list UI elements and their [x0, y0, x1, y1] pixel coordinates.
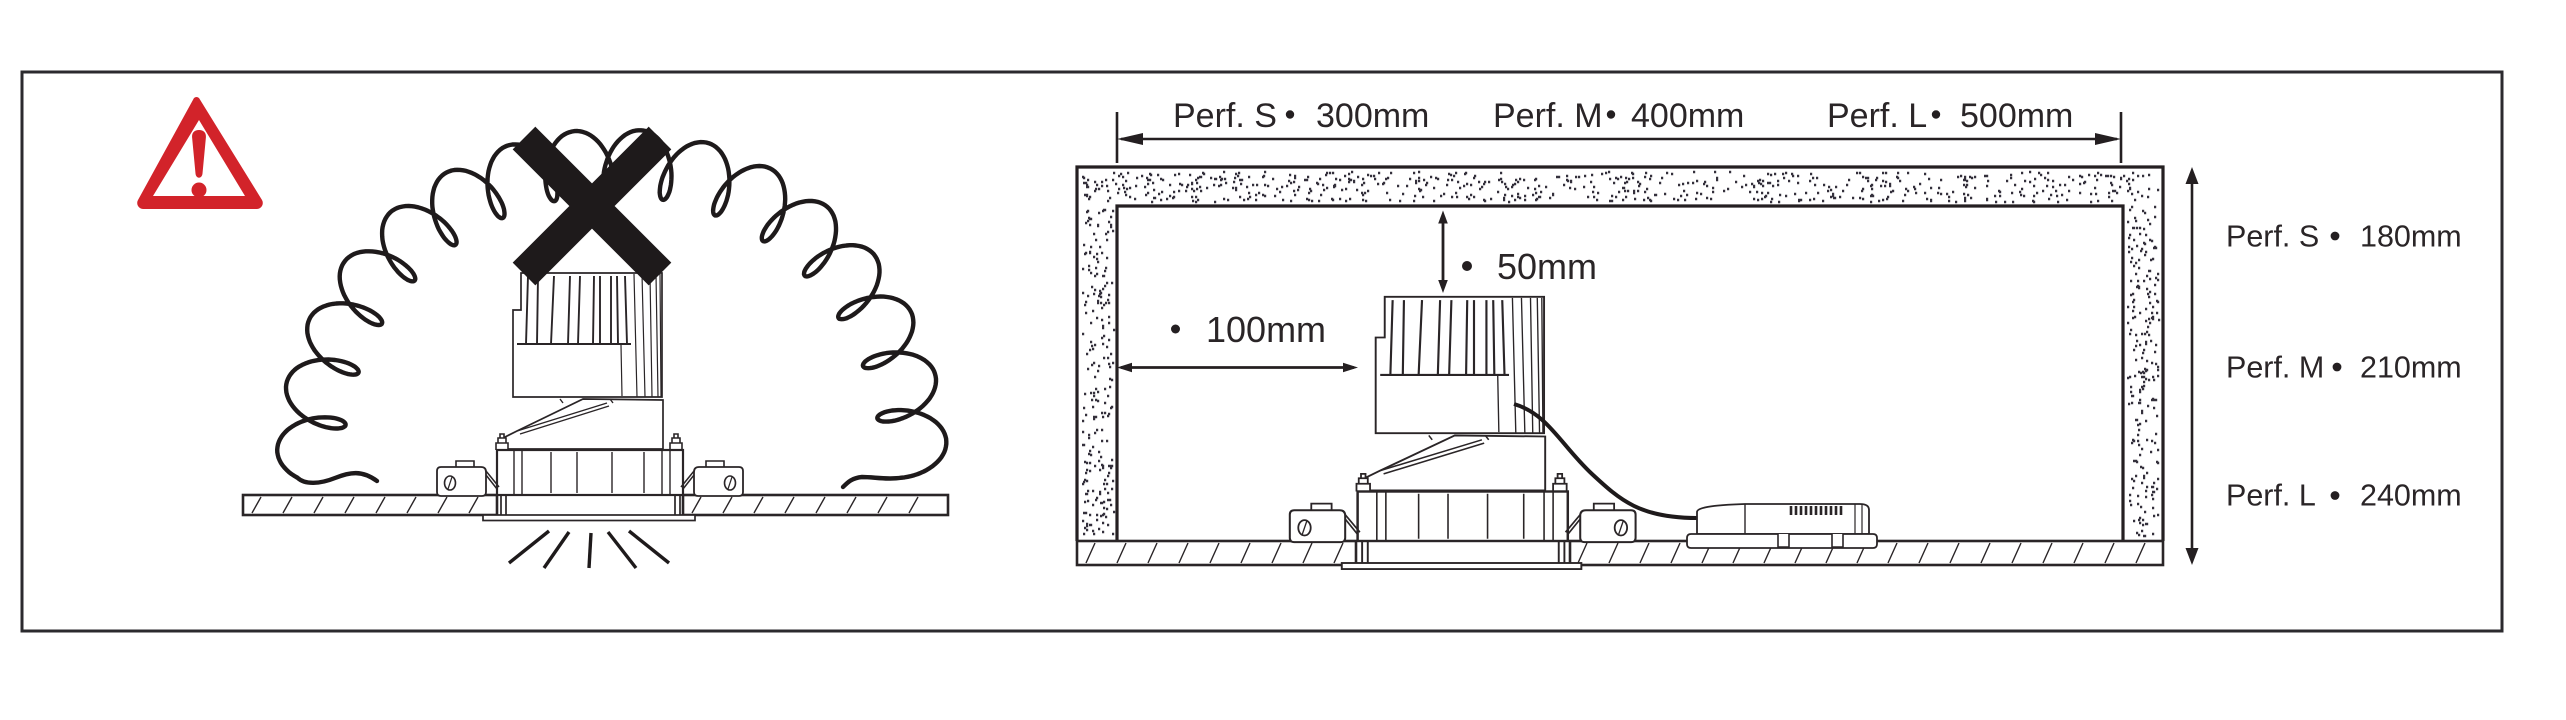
svg-text:Perf. S: Perf. S: [1173, 97, 1277, 135]
svg-text:Perf. S: Perf. S: [2226, 220, 2319, 254]
svg-text:100mm: 100mm: [1206, 309, 1326, 350]
svg-text:Perf. M: Perf. M: [1493, 97, 1603, 135]
svg-text:180mm: 180mm: [2360, 220, 2462, 254]
svg-text:210mm: 210mm: [2360, 351, 2462, 385]
svg-text:Perf. L: Perf. L: [2226, 479, 2316, 513]
svg-text:Perf. M: Perf. M: [2226, 351, 2324, 385]
svg-text:500mm: 500mm: [1960, 97, 2073, 135]
svg-text:300mm: 300mm: [1316, 97, 1429, 135]
svg-text:Perf. L: Perf. L: [1827, 97, 1927, 135]
svg-text:400mm: 400mm: [1631, 97, 1744, 135]
svg-text:50mm: 50mm: [1497, 246, 1597, 287]
svg-text:240mm: 240mm: [2360, 479, 2462, 513]
